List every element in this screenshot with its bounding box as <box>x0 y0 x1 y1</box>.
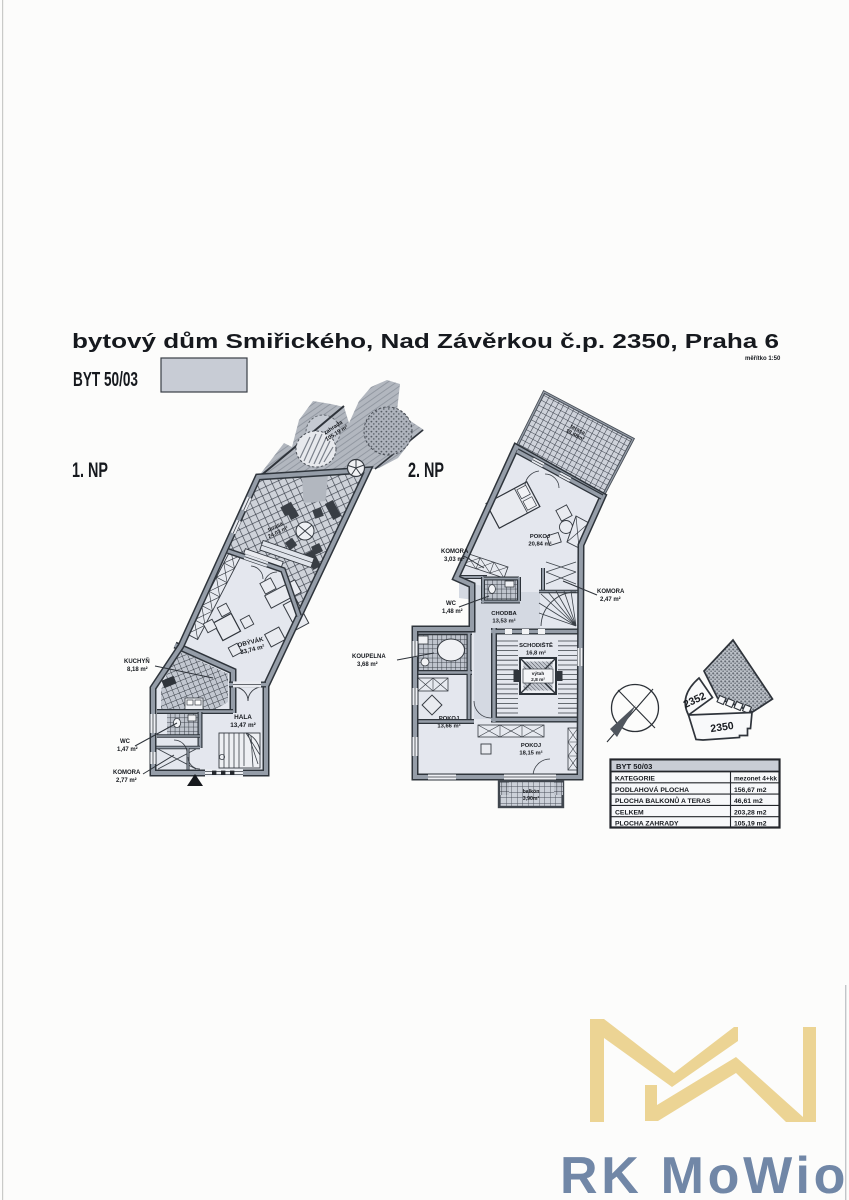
svg-text:výtah: výtah <box>532 671 545 677</box>
svg-text:balkón: balkón <box>523 789 540 795</box>
svg-text:POKOJ: POKOJ <box>521 743 541 749</box>
svg-text:měřítko 1:50: měřítko 1:50 <box>745 356 781 362</box>
svg-text:WC: WC <box>120 739 131 745</box>
svg-text:RK MoWio: RK MoWio <box>560 1147 849 1200</box>
svg-text:BYT 50/03: BYT 50/03 <box>616 762 652 771</box>
svg-text:KOMORA: KOMORA <box>113 770 141 776</box>
svg-text:KOMORA: KOMORA <box>441 549 469 555</box>
svg-text:2,77 m²: 2,77 m² <box>116 777 137 784</box>
svg-text:WC: WC <box>446 601 457 607</box>
svg-text:BYT 50/03: BYT 50/03 <box>73 369 138 391</box>
svg-text:3,68 m²: 3,68 m² <box>357 661 378 668</box>
svg-text:PLOCHA ZAHRADY: PLOCHA ZAHRADY <box>615 821 679 828</box>
svg-text:KOMORA: KOMORA <box>597 589 625 595</box>
svg-text:CELKEM: CELKEM <box>615 809 644 816</box>
svg-text:HALA: HALA <box>234 714 252 721</box>
svg-text:2,8 m²: 2,8 m² <box>531 677 545 683</box>
svg-text:bytový dům Smiřického, Nad Záv: bytový dům Smiřického, Nad Závěrkou č.p.… <box>72 331 779 353</box>
svg-text:156,67 m2: 156,67 m2 <box>734 787 767 794</box>
svg-text:KUCHYŇ: KUCHYŇ <box>124 657 150 665</box>
svg-text:46,61 m2: 46,61 m2 <box>734 798 763 805</box>
svg-text:1. NP: 1. NP <box>72 459 108 482</box>
svg-text:KATEGORIE: KATEGORIE <box>615 776 655 783</box>
svg-text:20,84 m²: 20,84 m² <box>528 541 551 548</box>
svg-text:13,47 m²: 13,47 m² <box>230 722 256 729</box>
svg-text:13,53 m²: 13,53 m² <box>492 618 515 625</box>
svg-text:SCHODIŠTĚ: SCHODIŠTĚ <box>519 641 553 649</box>
svg-text:8,18 m²: 8,18 m² <box>127 666 148 673</box>
svg-text:2. NP: 2. NP <box>408 459 444 482</box>
svg-text:mezonet 4+kk: mezonet 4+kk <box>734 776 777 783</box>
svg-text:203,28 m2: 203,28 m2 <box>734 809 767 816</box>
svg-text:KOUPELNA: KOUPELNA <box>352 654 386 660</box>
svg-text:18,15 m²: 18,15 m² <box>519 750 542 757</box>
svg-text:1,47 m²: 1,47 m² <box>117 746 138 753</box>
svg-text:PODLAHOVÁ PLOCHA: PODLAHOVÁ PLOCHA <box>615 785 689 794</box>
svg-text:16,8 m²: 16,8 m² <box>526 650 546 657</box>
svg-text:POKOJ: POKOJ <box>530 534 550 540</box>
svg-text:3,90m²: 3,90m² <box>523 796 540 802</box>
svg-text:3,03 m²: 3,03 m² <box>444 556 465 563</box>
svg-text:CHODBA: CHODBA <box>491 611 517 617</box>
svg-text:105,19 m2: 105,19 m2 <box>734 821 767 828</box>
svg-text:1,48 m²: 1,48 m² <box>442 608 463 615</box>
svg-text:2,47 m²: 2,47 m² <box>600 596 621 603</box>
